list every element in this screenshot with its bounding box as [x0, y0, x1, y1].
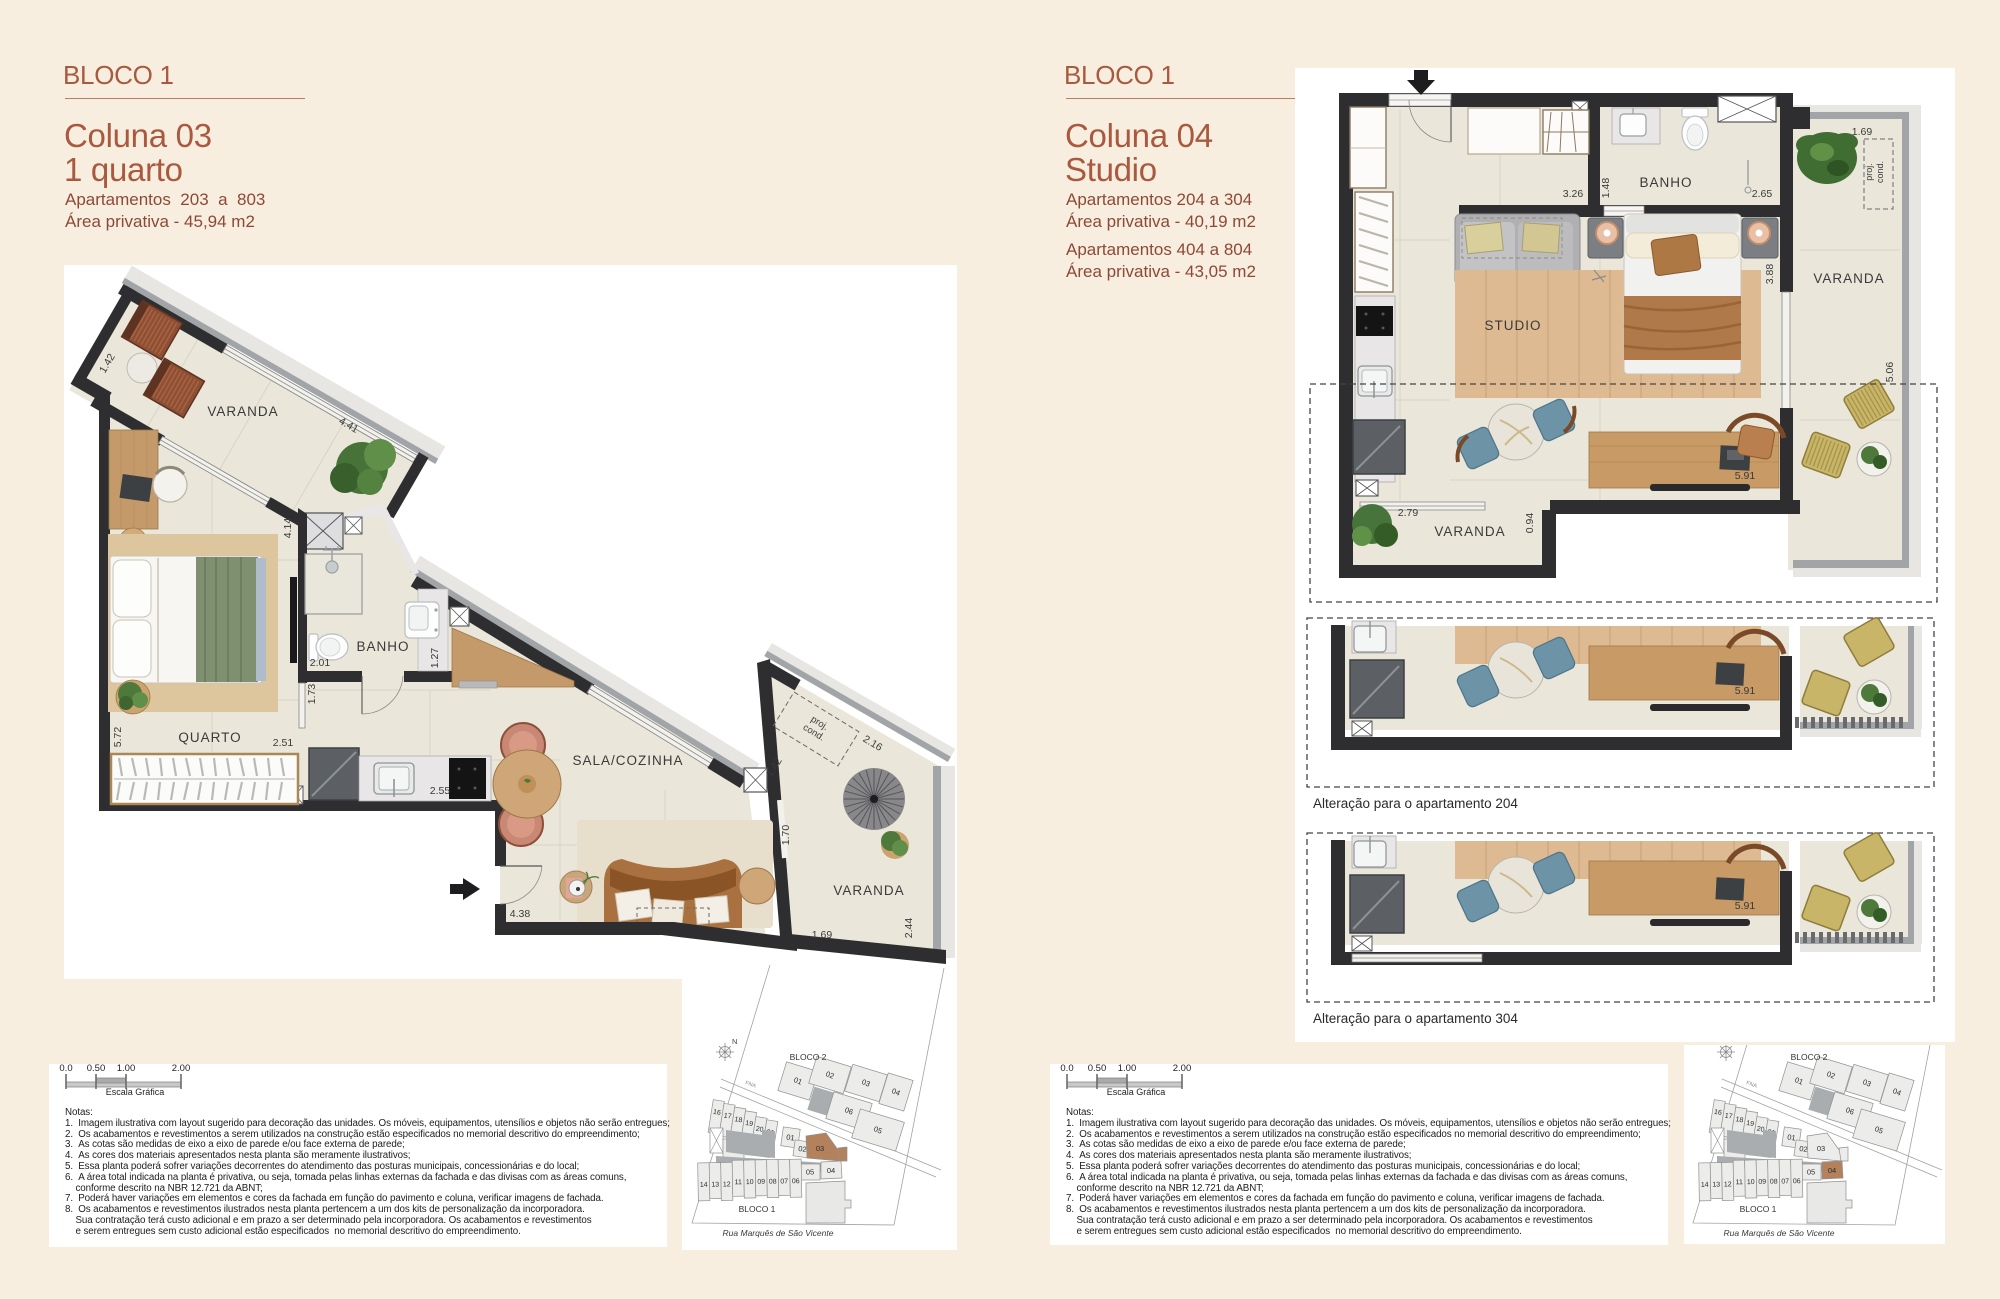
svg-text:4.38: 4.38: [510, 908, 531, 920]
svg-text:11: 11: [1736, 1179, 1743, 1186]
svg-text:VARANDA: VARANDA: [833, 883, 904, 898]
svg-text:02: 02: [1799, 1144, 1809, 1154]
svg-text:QUARTO: QUARTO: [178, 730, 241, 745]
svg-text:18: 18: [1735, 1116, 1744, 1124]
svg-text:07: 07: [1781, 1178, 1789, 1185]
svg-text:Alteração para o apartamento 3: Alteração para o apartamento 304: [1313, 1011, 1518, 1026]
svg-text:08: 08: [1770, 1179, 1778, 1186]
svg-text:5.72: 5.72: [112, 727, 124, 748]
svg-text:19: 19: [1746, 1120, 1755, 1128]
svg-text:08: 08: [769, 1179, 777, 1186]
svg-text:04: 04: [827, 1166, 835, 1175]
svg-text:0.0: 0.0: [59, 1064, 72, 1074]
svg-text:FNA: FNA: [1745, 1080, 1758, 1090]
svg-text:cond.: cond.: [1875, 161, 1885, 183]
svg-text:3.26: 3.26: [1563, 188, 1584, 200]
svg-text:Escala Gráfica: Escala Gráfica: [1107, 1087, 1166, 1097]
svg-text:17: 17: [723, 1113, 732, 1121]
svg-text:VARANDA: VARANDA: [207, 404, 278, 419]
svg-text:03: 03: [1817, 1144, 1825, 1153]
svg-text:0.94: 0.94: [1524, 513, 1536, 534]
svg-text:0.50: 0.50: [87, 1064, 106, 1074]
svg-text:04: 04: [1828, 1166, 1836, 1175]
svg-text:01: 01: [786, 1132, 796, 1142]
svg-text:Escala Gráfica: Escala Gráfica: [106, 1087, 165, 1097]
svg-text:14: 14: [700, 1182, 708, 1189]
svg-text:proj.: proj.: [1864, 163, 1874, 181]
svg-text:1.69: 1.69: [1852, 126, 1873, 138]
svg-text:0.0: 0.0: [1060, 1064, 1073, 1074]
svg-text:Rua Marquês de São Vicente: Rua Marquês de São Vicente: [723, 1228, 834, 1238]
svg-text:5.91: 5.91: [1735, 470, 1756, 482]
svg-text:03: 03: [816, 1144, 824, 1153]
svg-text:2.44: 2.44: [903, 918, 915, 939]
svg-text:BLOCO 1: BLOCO 1: [1740, 1204, 1777, 1214]
svg-text:2.00: 2.00: [1173, 1064, 1192, 1074]
svg-text:FNA: FNA: [744, 1080, 757, 1090]
svg-text:1.00: 1.00: [117, 1064, 136, 1074]
svg-text:06: 06: [792, 1178, 800, 1185]
svg-text:5.06: 5.06: [1884, 362, 1896, 383]
svg-text:09: 09: [1758, 1179, 1766, 1186]
svg-text:1.69: 1.69: [812, 929, 833, 941]
svg-text:5.91: 5.91: [1735, 685, 1756, 697]
svg-text:05: 05: [806, 1168, 814, 1177]
svg-text:N: N: [732, 1037, 737, 1046]
svg-text:BLOCO 2: BLOCO 2: [1791, 1052, 1828, 1062]
svg-text:2.55: 2.55: [430, 785, 451, 797]
svg-text:3.88: 3.88: [1764, 264, 1776, 285]
svg-text:13: 13: [711, 1182, 719, 1189]
svg-text:N: N: [1733, 1045, 1738, 1046]
svg-text:1.70: 1.70: [780, 825, 792, 846]
svg-text:4.14: 4.14: [282, 518, 294, 539]
svg-text:SALA/COZINHA: SALA/COZINHA: [572, 753, 683, 768]
svg-text:1.00: 1.00: [1118, 1064, 1137, 1074]
svg-text:2.65: 2.65: [1752, 188, 1773, 200]
svg-text:09: 09: [757, 1179, 765, 1186]
svg-text:2.00: 2.00: [172, 1064, 191, 1074]
svg-text:16: 16: [712, 1109, 721, 1117]
svg-text:Alteração para o apartamento 2: Alteração para o apartamento 204: [1313, 796, 1518, 811]
svg-text:05: 05: [1807, 1168, 1815, 1177]
svg-text:17: 17: [1724, 1113, 1733, 1121]
svg-text:02: 02: [798, 1144, 808, 1154]
svg-text:1.27: 1.27: [429, 648, 441, 669]
svg-text:1.73: 1.73: [306, 684, 318, 705]
svg-text:2.51: 2.51: [273, 737, 294, 749]
svg-text:BLOCO 1: BLOCO 1: [739, 1204, 776, 1214]
svg-text:12: 12: [1724, 1181, 1732, 1188]
svg-text:06: 06: [1793, 1178, 1801, 1185]
svg-text:BANHO: BANHO: [356, 639, 409, 654]
svg-text:BANHO: BANHO: [1639, 175, 1692, 190]
svg-text:VARANDA: VARANDA: [1434, 524, 1505, 539]
svg-text:10: 10: [1747, 1179, 1755, 1186]
svg-text:11: 11: [735, 1179, 742, 1186]
svg-text:1.48: 1.48: [1600, 178, 1612, 199]
svg-text:Rua Marquês de São Vicente: Rua Marquês de São Vicente: [1724, 1228, 1835, 1238]
svg-text:07: 07: [780, 1178, 788, 1185]
svg-text:BLOCO 2: BLOCO 2: [790, 1052, 827, 1062]
svg-text:5.91: 5.91: [1735, 900, 1756, 912]
svg-text:01: 01: [1787, 1132, 1797, 1142]
svg-text:2.01: 2.01: [310, 657, 331, 669]
svg-text:STUDIO: STUDIO: [1484, 318, 1541, 333]
svg-text:0.50: 0.50: [1088, 1064, 1107, 1074]
svg-text:VARANDA: VARANDA: [1813, 271, 1884, 286]
svg-text:18: 18: [734, 1116, 743, 1124]
svg-text:12: 12: [723, 1181, 731, 1188]
svg-text:16: 16: [1713, 1109, 1722, 1117]
svg-text:10: 10: [746, 1179, 754, 1186]
svg-text:19: 19: [745, 1120, 754, 1128]
svg-text:13: 13: [1712, 1182, 1720, 1189]
svg-text:14: 14: [1701, 1182, 1709, 1189]
svg-text:2.79: 2.79: [1398, 507, 1419, 519]
